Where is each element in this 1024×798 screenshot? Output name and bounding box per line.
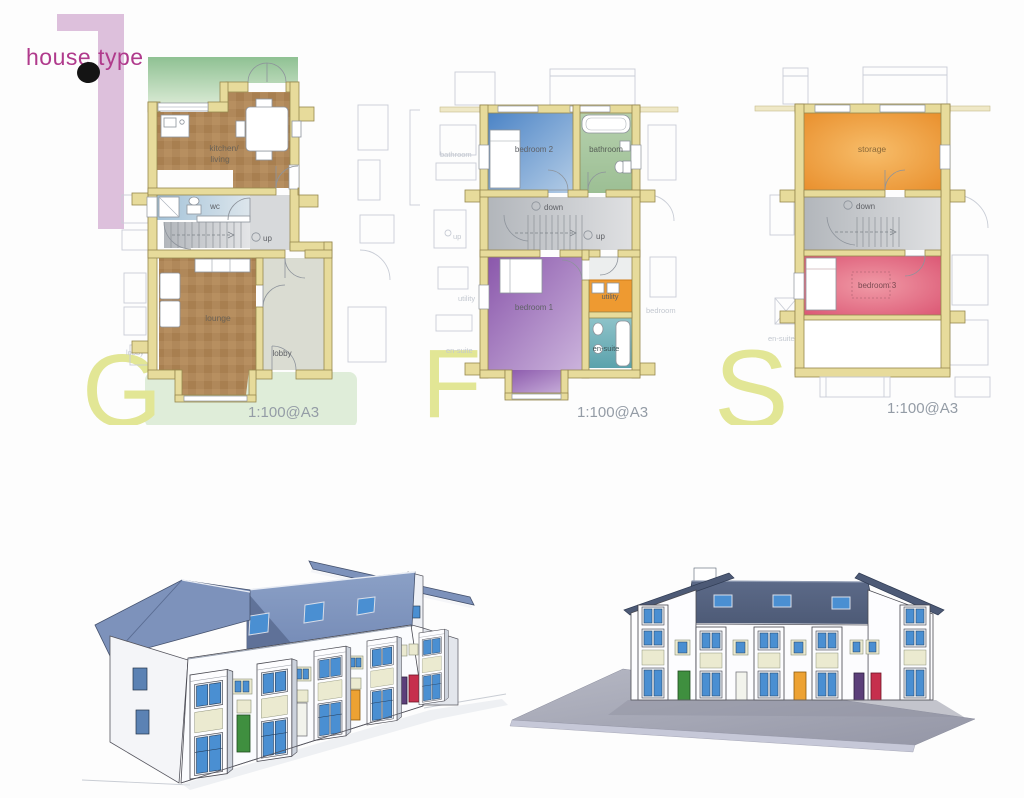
first-floor-plan: F bathroom up utility en-suite bedroom [420, 45, 680, 425]
party-wall-stub [950, 190, 965, 202]
party-wall-stub [465, 190, 480, 202]
projecting-bay [190, 669, 233, 780]
front-door-red [871, 673, 881, 700]
storage-label: storage [858, 144, 887, 154]
front-door-white [736, 672, 747, 700]
bedroom3-bed [806, 258, 836, 310]
adjacent-bedroom-label: bedroom [646, 306, 676, 315]
skylight [304, 602, 324, 623]
skylight [249, 613, 269, 635]
bay-window-floor [175, 370, 249, 395]
party-wall-stub [640, 190, 655, 202]
projecting-bay [812, 627, 842, 700]
party-wall-stub [780, 311, 795, 323]
wc-label: wc [209, 202, 220, 211]
projecting-bay-tall [900, 605, 930, 700]
bedroom2-label: bedroom 2 [515, 145, 554, 154]
kitchen-sink-unit [161, 115, 189, 137]
ground-scale-label: 1:100@A3 [248, 404, 319, 421]
kitchen-label-line1: kitchen/ [209, 143, 239, 153]
perspective-view-terrace [78, 548, 510, 798]
front-door-purple [854, 673, 864, 700]
party-wall-faint [440, 107, 480, 112]
up-label: up [263, 234, 272, 243]
bay-roof-outline [455, 69, 635, 105]
skylight [832, 597, 850, 609]
gable-end-wall [110, 636, 188, 783]
bay-roof-outline [783, 67, 947, 104]
first-floor-letter: F [422, 329, 481, 425]
empty-room-floor [804, 320, 941, 368]
party-wall-stub [298, 195, 318, 207]
window [133, 668, 147, 690]
party-wall-stub [465, 363, 480, 375]
projecting-bay [257, 658, 297, 761]
projecting-bay [754, 627, 784, 700]
adjacent-ensuite-label: en-suite [768, 334, 795, 343]
lobby-label: lobby [272, 349, 291, 358]
utility-label: utility [601, 292, 618, 301]
party-wall-stub [950, 311, 965, 323]
second-scale-label: 1:100@A3 [887, 400, 958, 417]
party-wall-faint [640, 107, 678, 112]
party-wall-stub [640, 363, 655, 375]
front-door-green [237, 715, 250, 752]
bedroom2-bed [490, 130, 520, 188]
projecting-bay-tall [638, 605, 668, 700]
projecting-bay [367, 636, 402, 725]
party-wall-faint [755, 106, 795, 111]
bedroom1-bay-floor [505, 370, 568, 395]
lounge-label: lounge [205, 313, 231, 323]
up-label: up [596, 232, 605, 241]
elevation-view-terrace [496, 548, 992, 783]
projecting-bay [419, 629, 448, 705]
stair-bulkhead [197, 216, 250, 222]
party-wall-stub [298, 107, 314, 121]
vestibule-floor [589, 257, 632, 280]
projecting-bay [314, 646, 351, 741]
front-door-orange [794, 672, 806, 700]
front-door-green [678, 671, 690, 700]
bedroom3-label: bedroom 3 [858, 281, 897, 290]
projecting-bay [696, 627, 726, 700]
party-wall-stub [132, 341, 150, 353]
adjacent-ensuite-label: en-suite [446, 346, 473, 355]
adjacent-unit-sketch-right [348, 105, 420, 362]
adjacent-unit-sketch-left [770, 195, 797, 324]
adjacent-unit-sketch-right [648, 125, 676, 297]
skylight [773, 595, 791, 607]
building-shadow [608, 700, 964, 717]
bedroom1-bed [500, 259, 542, 293]
adjacent-bathroom-label: bathroom [440, 150, 472, 159]
adjacent-up-label: up [453, 232, 461, 241]
skylight [357, 597, 375, 615]
window [136, 710, 149, 734]
second-floor-plan: S en-suite [700, 45, 1024, 425]
adjacent-unit-sketch-right [950, 195, 990, 397]
down-label: down [856, 202, 875, 211]
main-roof [685, 581, 877, 625]
front-door-red [409, 675, 419, 702]
ensuite-label: en-suite [593, 344, 620, 353]
bedroom1-label: bedroom 1 [515, 303, 554, 312]
party-wall-stub [780, 190, 795, 202]
first-scale-label: 1:100@A3 [577, 404, 648, 421]
bay-outline-below [820, 377, 890, 397]
down-label: down [544, 203, 563, 212]
party-wall-faint [950, 106, 990, 111]
kitchen-label-line2: living [210, 154, 230, 164]
adjacent-utility-label: utility [458, 294, 475, 303]
skylight [714, 595, 732, 607]
bathroom-label: bathroom [589, 145, 623, 154]
ground-floor-plan: G lobby [60, 45, 420, 425]
